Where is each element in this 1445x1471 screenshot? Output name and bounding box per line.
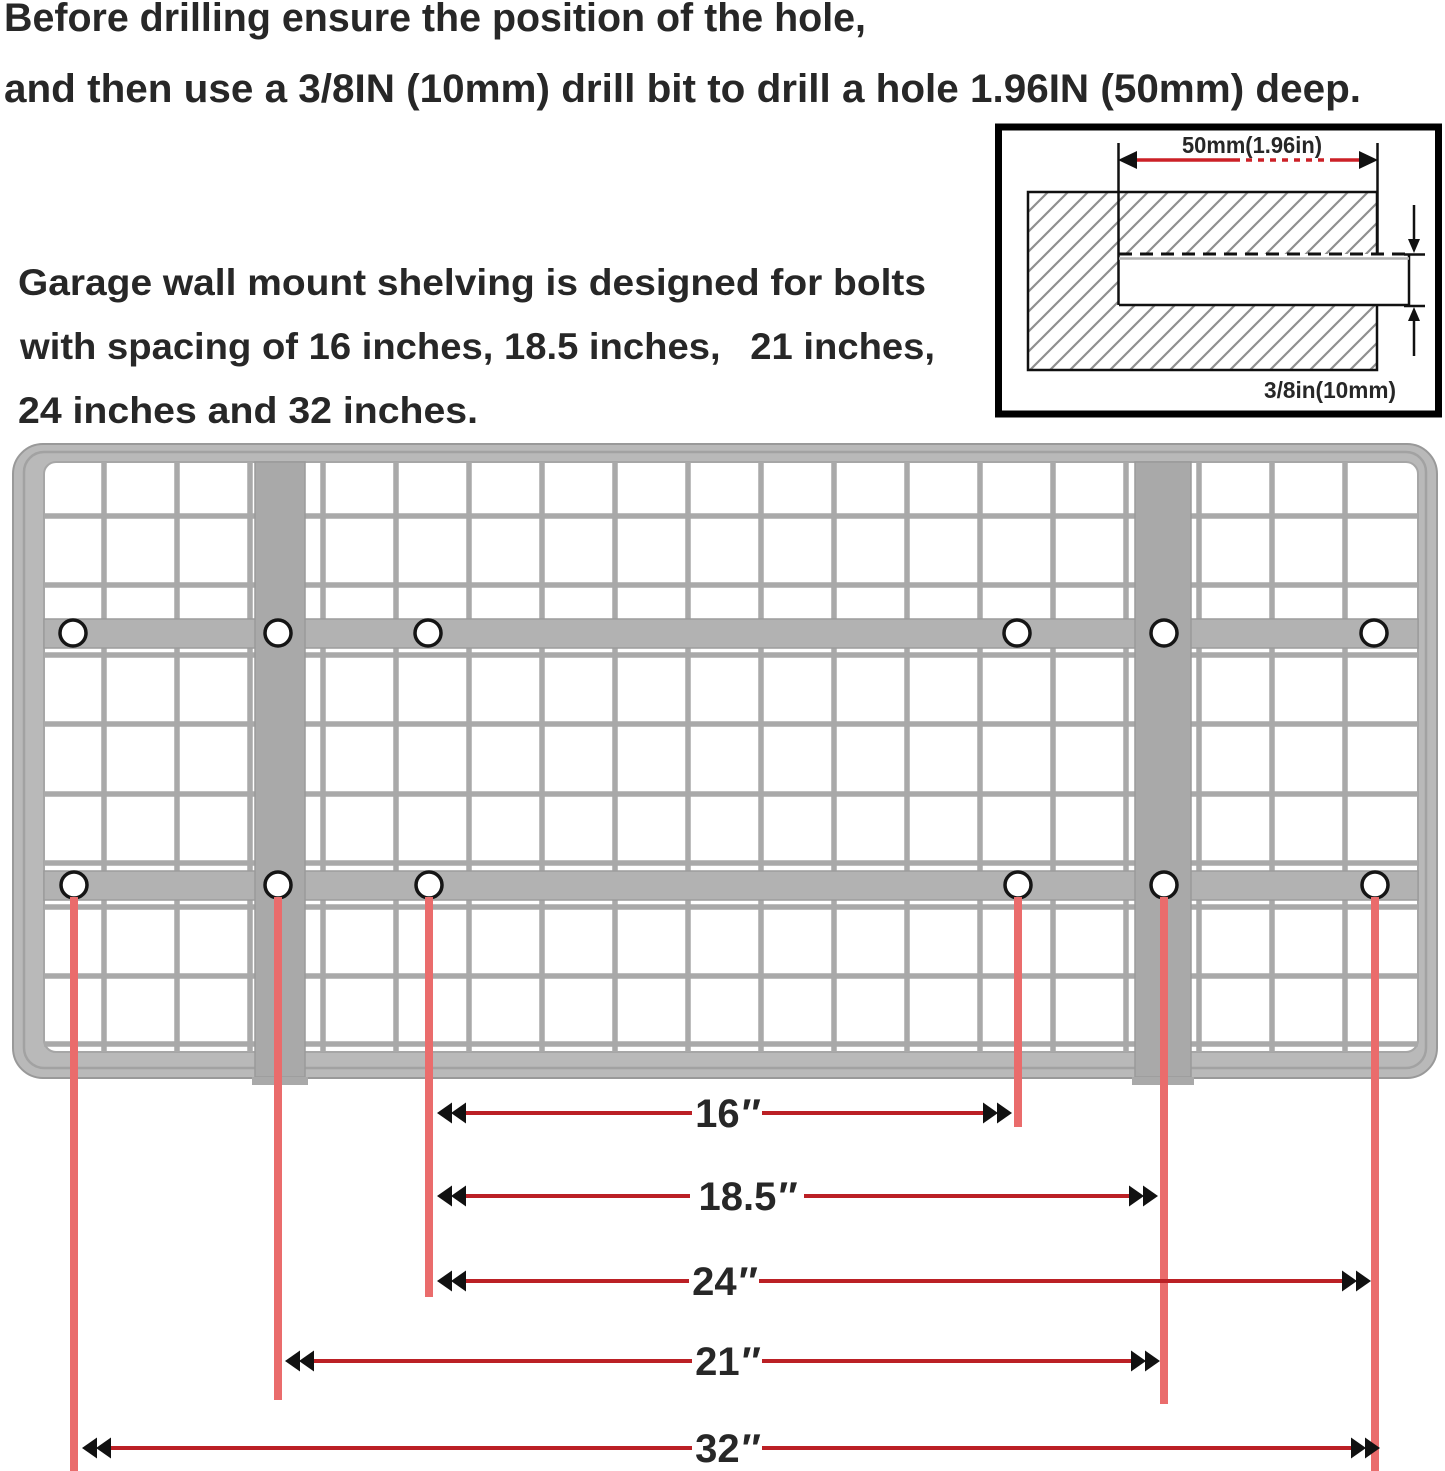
svg-text:50mm(1.96in): 50mm(1.96in) (1182, 132, 1322, 158)
svg-text:3/8in(10mm): 3/8in(10mm) (1264, 377, 1396, 403)
svg-text:24 inches and 32 inches.: 24 inches and 32 inches. (18, 390, 478, 431)
svg-text:Garage wall mount shelving is: Garage wall mount shelving is designed f… (18, 262, 926, 303)
svg-text:21″: 21″ (695, 1340, 761, 1384)
svg-text:Before drilling ensure the pos: Before drilling ensure the position of t… (4, 0, 866, 40)
svg-text:24″: 24″ (692, 1260, 758, 1304)
svg-text:and then use a 3/8IN (10mm) dr: and then use a 3/8IN (10mm) drill bit to… (4, 67, 1361, 111)
svg-text:18.5″: 18.5″ (698, 1175, 797, 1219)
svg-text:16″: 16″ (695, 1092, 761, 1136)
svg-text:with spacing of 16 inches, 18.: with spacing of 16 inches, 18.5 inches, … (19, 326, 935, 367)
svg-text:32″: 32″ (695, 1427, 761, 1471)
